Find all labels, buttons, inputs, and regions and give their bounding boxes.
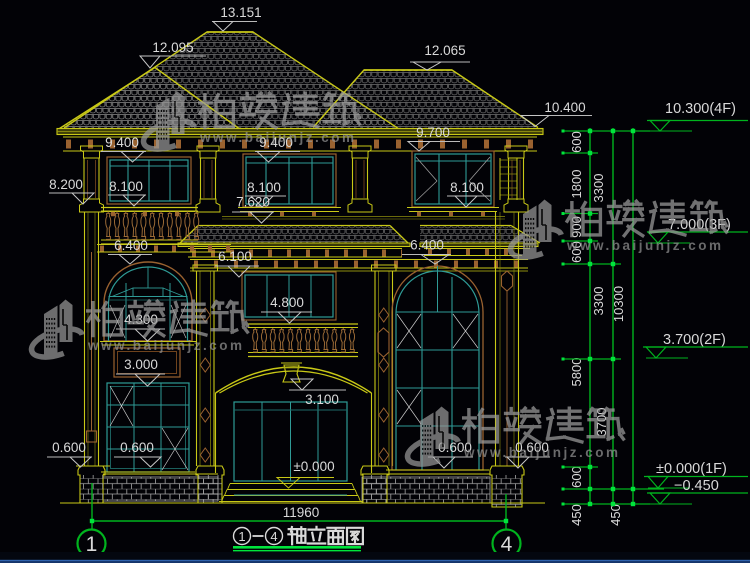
svg-text:www.baijunjz.com: www.baijunjz.com	[87, 338, 245, 353]
svg-text:12.065: 12.065	[424, 43, 465, 58]
svg-text:450: 450	[608, 504, 623, 526]
svg-text:9.400: 9.400	[105, 135, 139, 150]
svg-text:10.400: 10.400	[544, 100, 585, 115]
svg-text:4.800: 4.800	[270, 295, 304, 310]
svg-text:3300: 3300	[591, 174, 606, 203]
svg-text:10.300(4F): 10.300(4F)	[665, 101, 736, 117]
svg-text:450: 450	[569, 504, 584, 526]
svg-text:3.700(2F): 3.700(2F)	[663, 332, 726, 348]
svg-text:6.400: 6.400	[114, 238, 148, 253]
svg-text:www.baijunjz.com: www.baijunjz.com	[566, 238, 724, 253]
svg-text:www.baijunjz.com: www.baijunjz.com	[463, 445, 621, 460]
svg-text:8.200: 8.200	[49, 177, 83, 192]
svg-text:11960: 11960	[283, 505, 320, 520]
svg-text:1: 1	[238, 529, 245, 544]
svg-text:−0.450: −0.450	[674, 478, 719, 494]
svg-text:±0.000(1F): ±0.000(1F)	[656, 461, 727, 477]
svg-text:13.151: 13.151	[220, 5, 261, 20]
svg-text:9.700: 9.700	[416, 125, 450, 140]
svg-text:5800: 5800	[569, 358, 584, 387]
svg-text:3.000: 3.000	[124, 357, 158, 372]
svg-text:7.620: 7.620	[236, 195, 270, 210]
svg-text:600: 600	[569, 466, 584, 488]
svg-text:±0.000: ±0.000	[293, 459, 334, 474]
svg-text:www.baijunjz.com: www.baijunjz.com	[199, 130, 357, 145]
svg-text:8.100: 8.100	[247, 180, 281, 195]
svg-text:0.600: 0.600	[120, 440, 154, 455]
svg-text:6.100: 6.100	[218, 249, 252, 264]
svg-text:8.100: 8.100	[450, 180, 484, 195]
svg-text:6.400: 6.400	[410, 238, 444, 253]
svg-text:3.100: 3.100	[305, 392, 339, 407]
svg-text:0.600: 0.600	[52, 440, 86, 455]
svg-text:4: 4	[270, 529, 277, 544]
svg-text:3300: 3300	[591, 287, 606, 316]
svg-text:1800: 1800	[569, 170, 584, 199]
svg-text:600: 600	[569, 131, 584, 153]
svg-text:8.100: 8.100	[109, 179, 143, 194]
svg-text:12.095: 12.095	[152, 40, 193, 55]
